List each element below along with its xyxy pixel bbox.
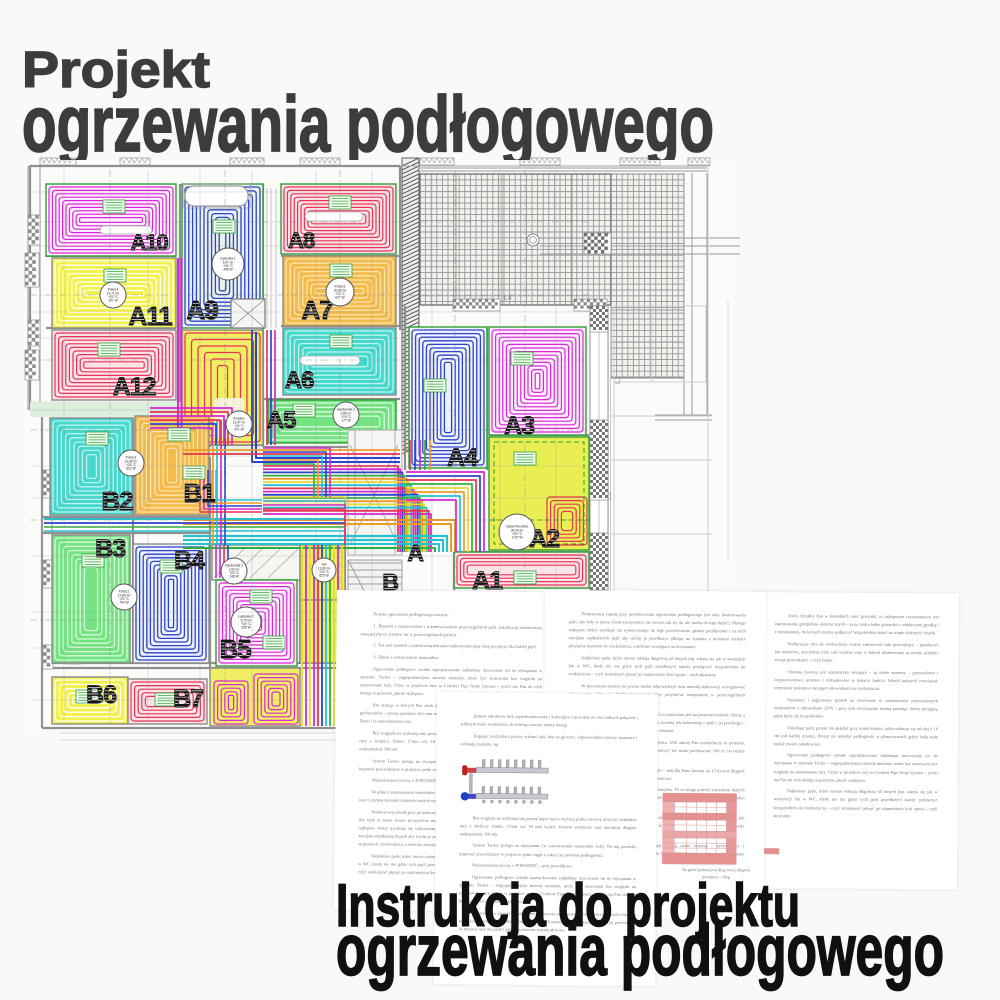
svg-text:B2: B2 bbox=[101, 486, 133, 516]
svg-text:L1: L1 bbox=[615, 376, 622, 384]
svg-text:L4: L4 bbox=[504, 295, 512, 302]
svg-text:625 W: 625 W bbox=[319, 574, 328, 578]
svg-text:1737 W: 1737 W bbox=[512, 536, 523, 540]
svg-text:148 W: 148 W bbox=[229, 575, 238, 579]
svg-text:622 W: 622 W bbox=[126, 467, 135, 471]
svg-text:A: A bbox=[407, 540, 423, 566]
svg-text:A6: A6 bbox=[285, 367, 314, 394]
svg-text:627 W: 627 W bbox=[335, 296, 344, 300]
svg-text:445 W: 445 W bbox=[223, 268, 232, 272]
svg-text:B1: B1 bbox=[183, 478, 215, 508]
svg-text:177 W: 177 W bbox=[341, 419, 350, 423]
svg-text:471 W: 471 W bbox=[234, 428, 243, 432]
svg-text:A9: A9 bbox=[186, 295, 218, 325]
svg-text:A10: A10 bbox=[130, 230, 168, 255]
svg-text:B6: B6 bbox=[86, 681, 116, 709]
svg-text:764 W: 764 W bbox=[119, 601, 128, 605]
svg-text:A4: A4 bbox=[447, 444, 478, 472]
svg-text:B7: B7 bbox=[173, 685, 203, 713]
svg-text:B3: B3 bbox=[95, 535, 125, 563]
svg-text:207 W: 207 W bbox=[108, 299, 117, 303]
svg-text:A12: A12 bbox=[113, 373, 156, 401]
svg-text:B4: B4 bbox=[174, 547, 205, 575]
svg-text:A5: A5 bbox=[267, 407, 296, 434]
svg-text:A11: A11 bbox=[128, 301, 172, 331]
svg-text:A8: A8 bbox=[288, 228, 315, 253]
svg-text:A3: A3 bbox=[504, 412, 534, 440]
svg-text:259 W: 259 W bbox=[241, 626, 250, 630]
svg-text:B5: B5 bbox=[219, 634, 251, 664]
